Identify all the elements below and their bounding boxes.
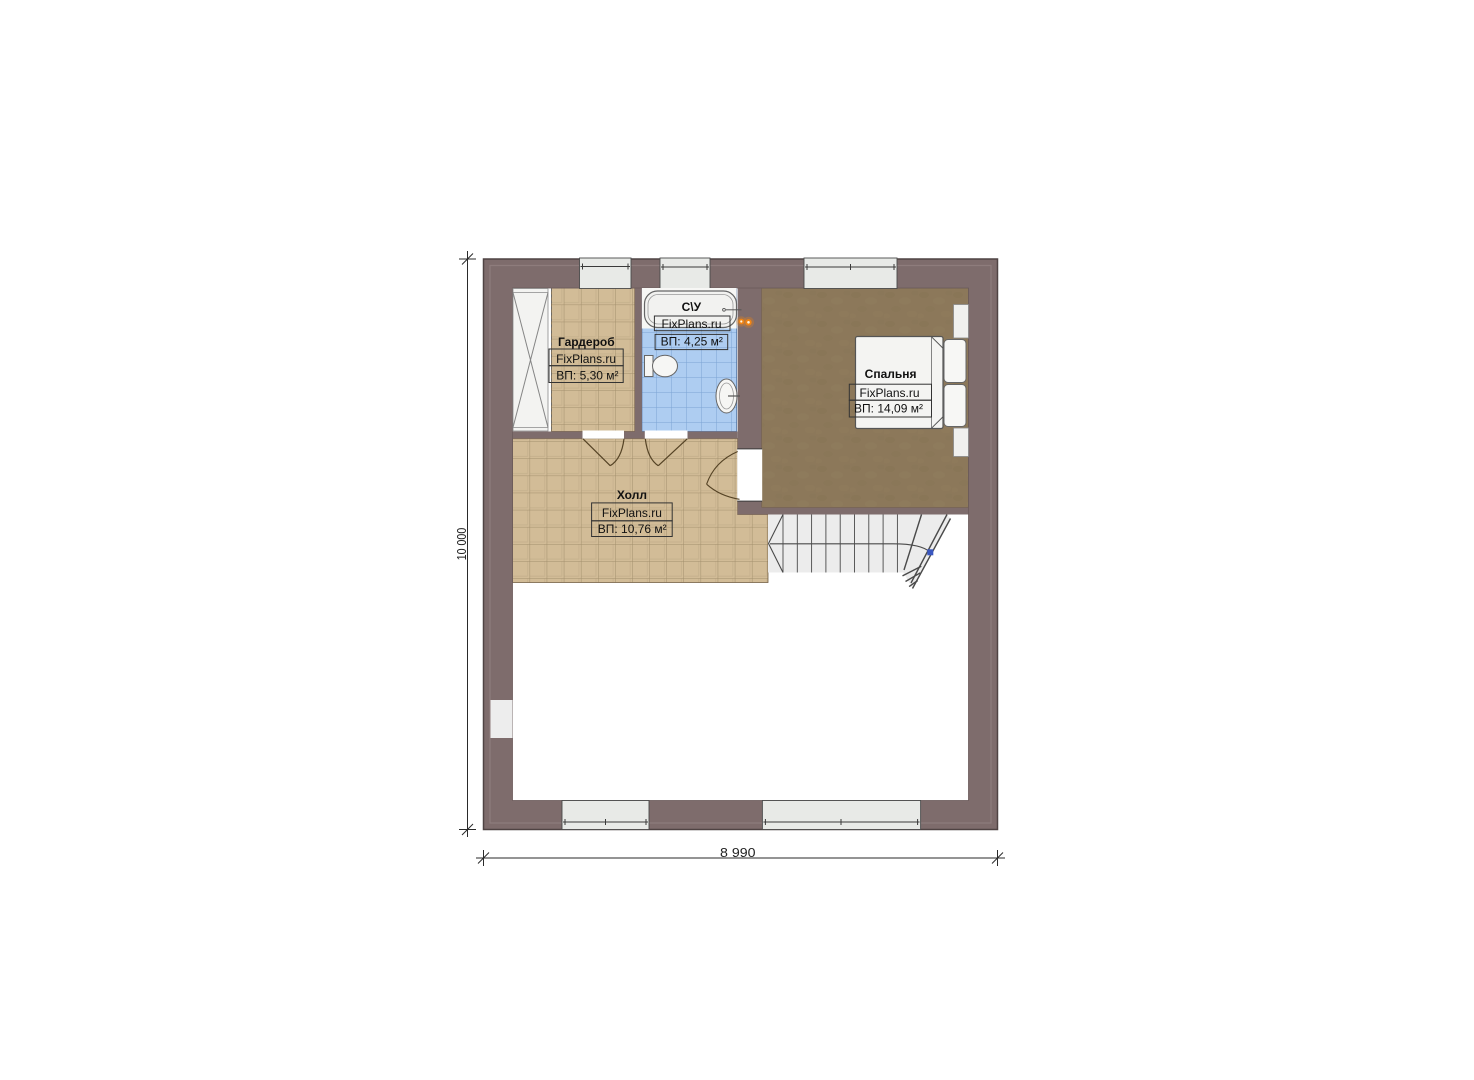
svg-text:С\У: С\У: [682, 300, 702, 314]
svg-text:FixPlans.ru: FixPlans.ru: [661, 317, 721, 331]
svg-text:FixPlans.ru: FixPlans.ru: [556, 352, 616, 366]
svg-text:FixPlans.ru: FixPlans.ru: [859, 386, 919, 400]
svg-text:FixPlans.ru: FixPlans.ru: [602, 506, 662, 520]
svg-text:Холл: Холл: [617, 488, 647, 502]
svg-text:Гардероб: Гардероб: [558, 335, 615, 349]
svg-text:ВП: 5,30 м²: ВП: 5,30 м²: [556, 369, 618, 383]
svg-text:ВП: 14,09 м²: ВП: 14,09 м²: [854, 401, 923, 415]
svg-text:10 000: 10 000: [455, 528, 469, 561]
svg-text:8 990: 8 990: [720, 846, 756, 860]
svg-text:ВП: 4,25 м²: ВП: 4,25 м²: [661, 334, 723, 348]
svg-text:Спальня: Спальня: [865, 367, 917, 381]
svg-text:ВП: 10,76 м²: ВП: 10,76 м²: [598, 522, 667, 536]
